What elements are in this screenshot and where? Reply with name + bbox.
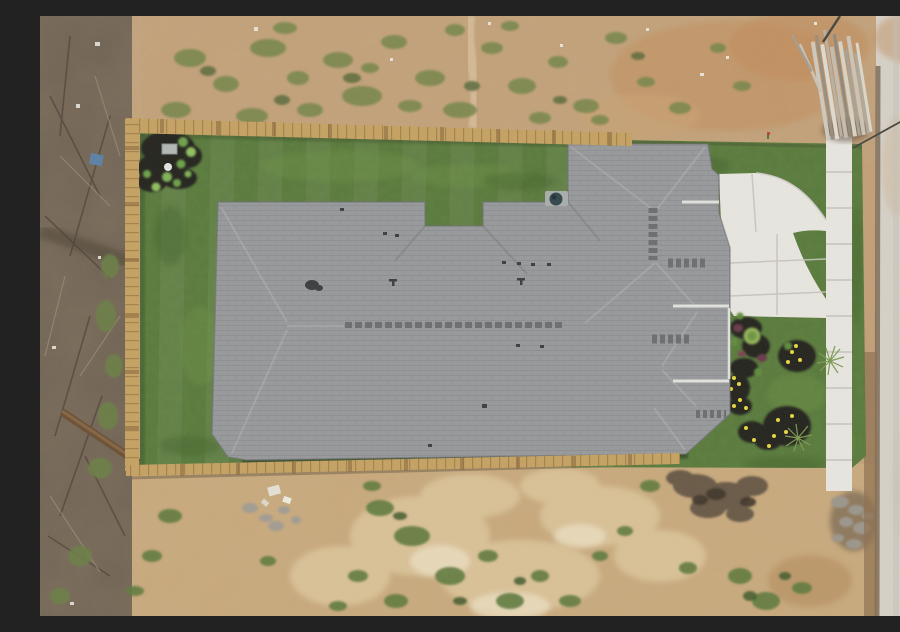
aerial-photo <box>40 16 900 616</box>
photo-grain <box>40 16 900 616</box>
